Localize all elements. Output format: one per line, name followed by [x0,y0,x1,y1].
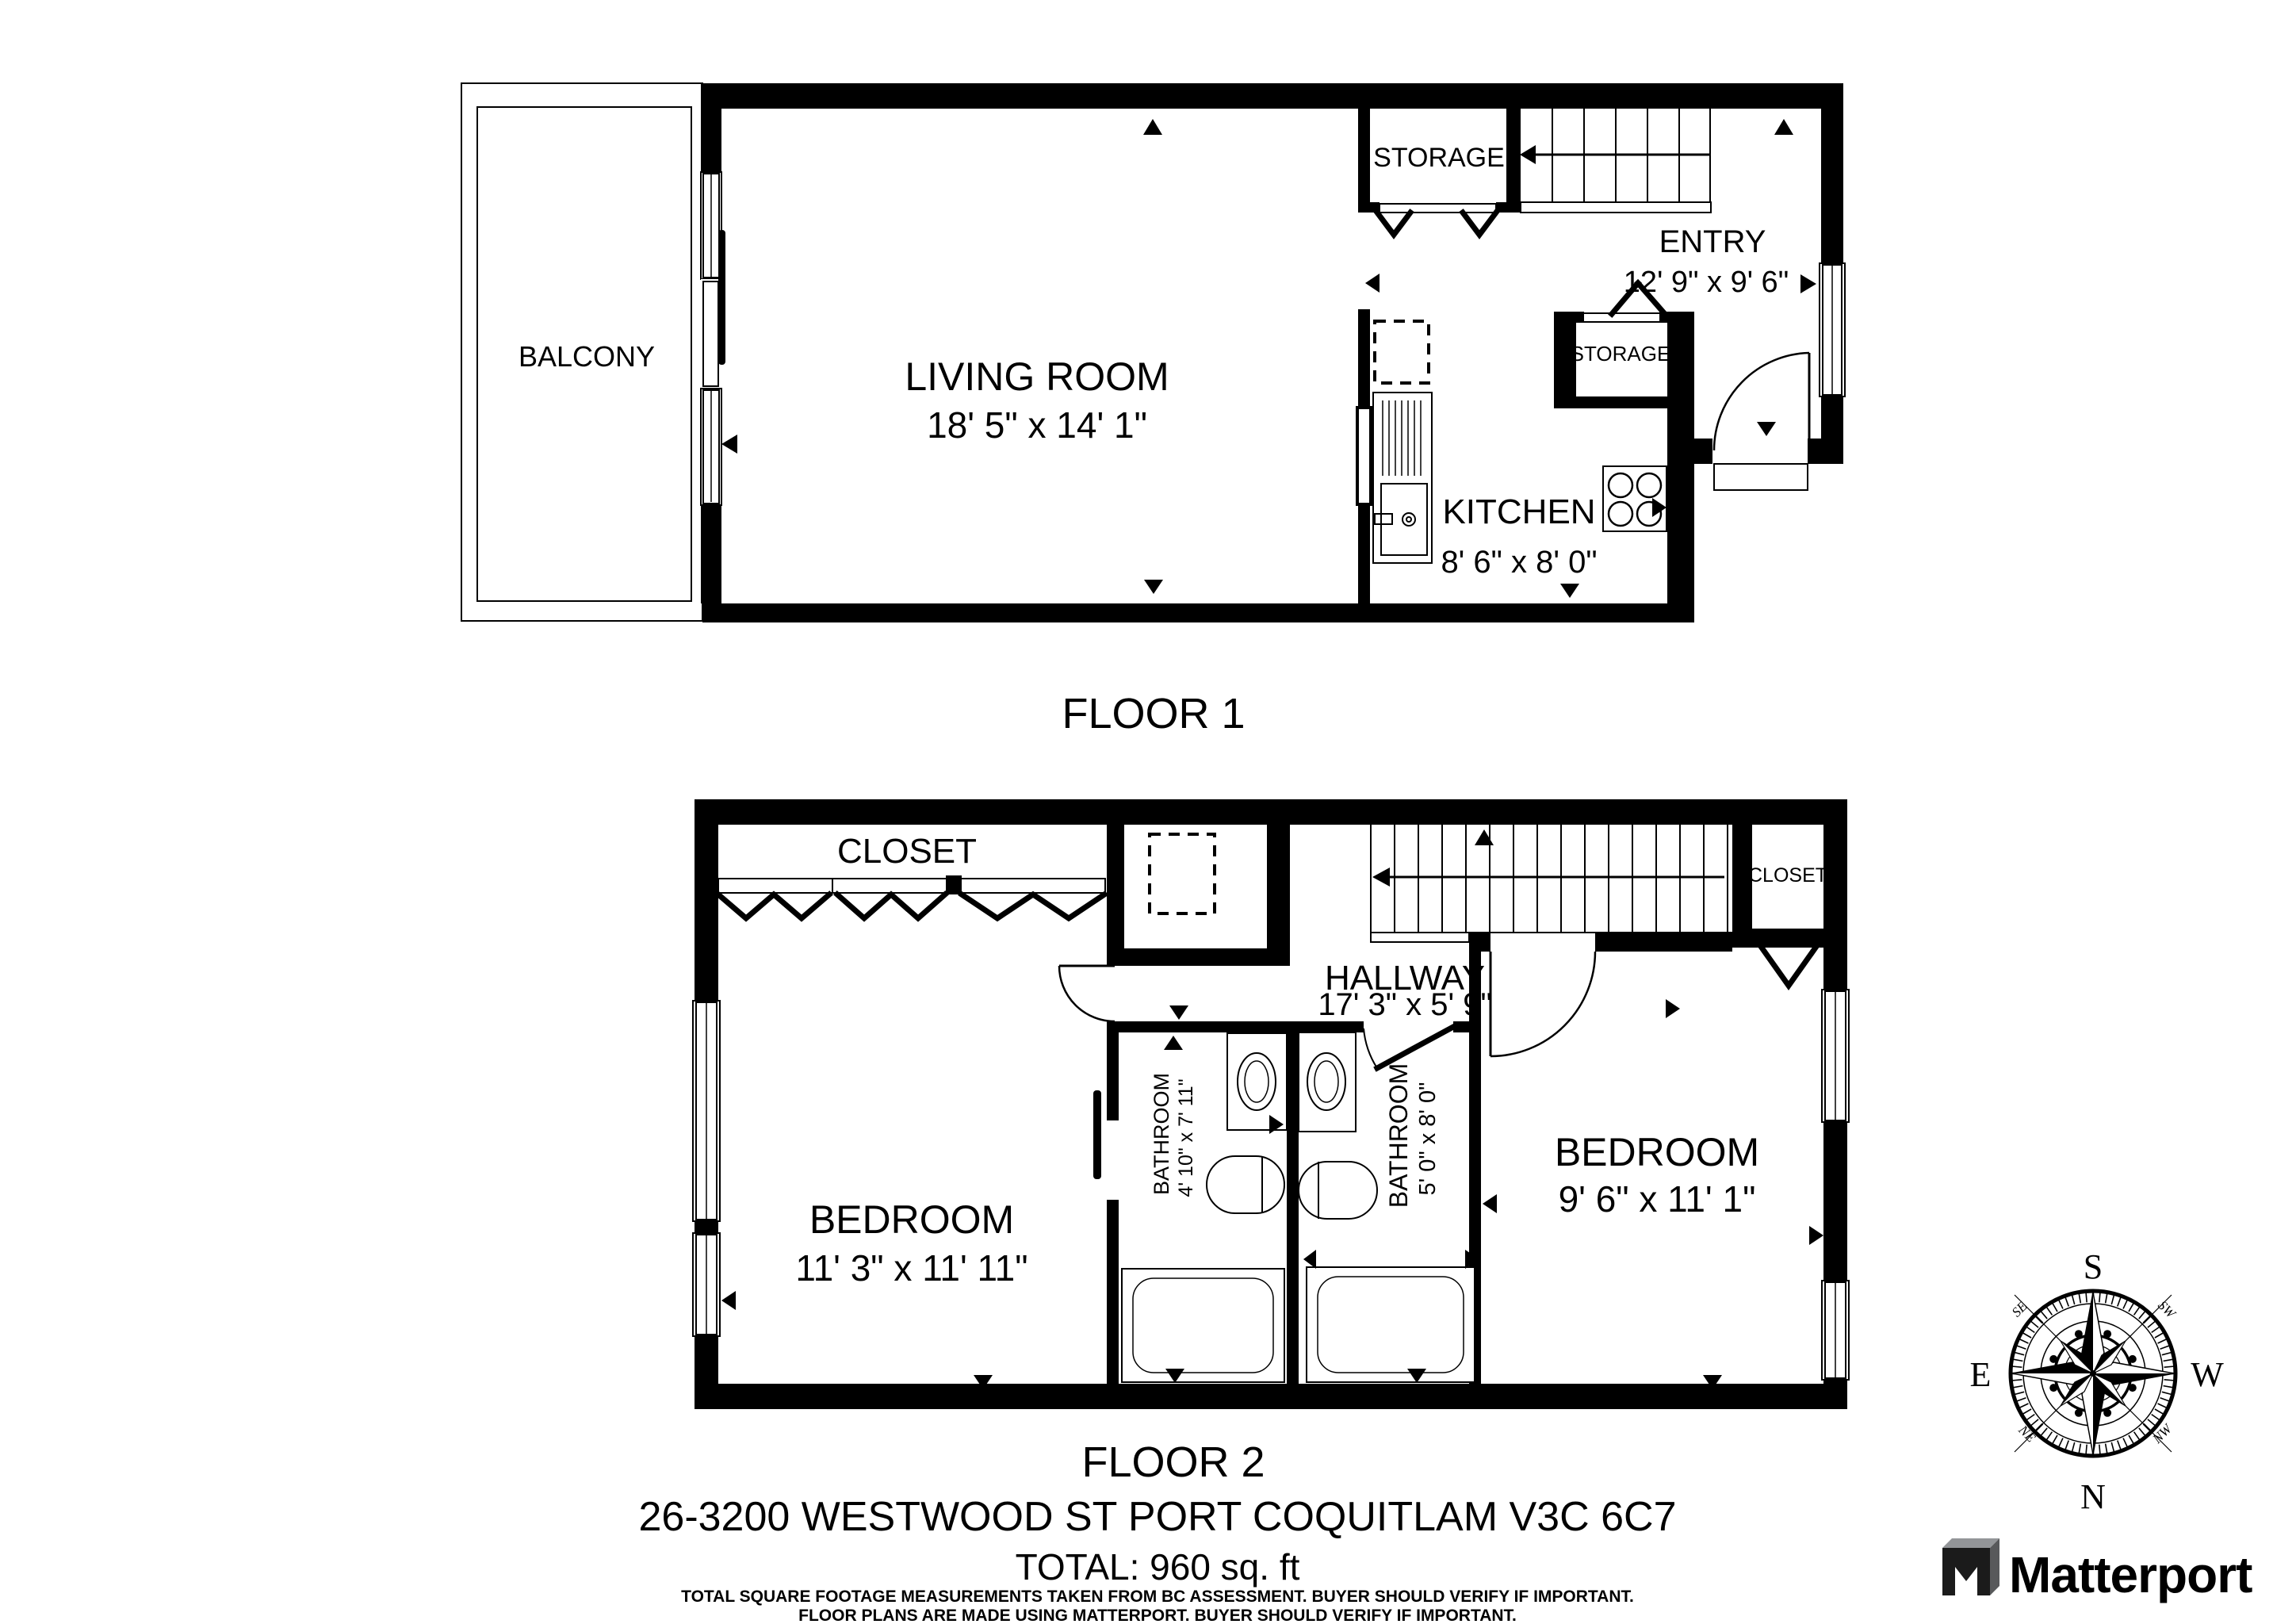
matterport-wordmark: Matterport [2009,1546,2252,1603]
compass-north-label: N [2080,1477,2106,1516]
room-label-entry: ENTRY [1659,224,1766,259]
dimension-marker [1774,119,1793,135]
compass-tick [2160,1398,2169,1401]
bedroom-window [693,1001,720,1221]
plan-geometry [2090,1370,2096,1377]
dimension-marker [1560,584,1579,598]
compass-dot [2075,1409,2083,1417]
room-label-bedroom-left: BEDROOM [809,1197,1014,1242]
compass-tick [2139,1428,2145,1435]
plan-geometry [1521,202,1711,213]
kitchen-stove [1603,466,1667,531]
room-dims-bathroom-right: 5' 0" x 8' 0" [1415,1082,1441,1196]
plan-geometry [1377,1027,1453,1068]
compass-tick [2152,1415,2160,1420]
matterport-logo: Matterport [1942,1538,2252,1603]
compass-dot [2103,1409,2111,1417]
compass-tick [2012,1366,2022,1367]
wall [1358,309,1370,407]
compass-east-label: E [1970,1355,1992,1394]
toilet [1299,1162,1377,1219]
fixture-dashed [1150,834,1215,913]
compass-tick [2123,1300,2127,1309]
compass-tick [2155,1333,2163,1338]
closet-door [1762,948,1816,986]
wall [702,603,1694,622]
dimension-marker [721,1291,736,1310]
compass-tick [2072,1442,2075,1452]
wall [946,875,962,894]
disclaimer-line1: TOTAL SQUARE FOOTAGE MEASUREMENTS TAKEN … [681,1588,1634,1606]
compass-tick [2099,1293,2100,1302]
wall [1469,933,1490,952]
floor1-label: FLOOR 1 [1062,690,1245,737]
room-dims-kitchen: 8' 6" x 8' 0" [1441,545,1597,580]
compass-dot [2049,1384,2057,1392]
room-label-storage-upper: STORAGE [1373,143,1505,173]
room-label-closet-left: CLOSET [837,832,977,871]
compass-tick [2046,1307,2052,1315]
wall [1287,1021,1299,1409]
bifold-door [718,894,829,918]
bedroom-window [693,1233,720,1336]
compass-tick [2041,1312,2047,1319]
compass-tick [2155,1409,2163,1414]
plan-geometry [1364,1028,1377,1068]
compass-tick [2072,1295,2075,1304]
compass-tick [2106,1444,2107,1454]
dimension-marker [1483,1194,1497,1213]
wall [695,799,718,1001]
dimension-marker [1475,829,1494,845]
compass-south-label: S [2084,1247,2103,1286]
compass-tick [2164,1386,2173,1388]
compass-tick [2012,1380,2022,1381]
wall [1107,825,1124,966]
compass-tick [2059,1300,2063,1309]
compass-dot [2103,1330,2111,1338]
wall [1506,109,1521,213]
compass-tick [2139,1312,2145,1319]
compass-tick [2059,1438,2063,1447]
compass-tick [2134,1432,2140,1440]
dimension-marker [1143,119,1162,135]
compass-tick [2152,1327,2160,1332]
compass-west-label: W [2191,1355,2224,1394]
dimension-marker [1169,1005,1188,1020]
compass-sw-label: SW [2155,1297,2179,1322]
plan-geometry [1942,1548,1990,1595]
dimension-marker [1757,422,1776,436]
footer: 26-3200 WESTWOOD ST PORT COQUITLAM V3C 6… [638,1494,1676,1624]
floor2-plan: CLOSET CLOSET HALLWAY 17' 3" x 5' 9" BED… [693,799,1849,1486]
wall [1119,1021,1364,1032]
compass-dot [2075,1330,2083,1338]
staircase-floor2 [1371,825,1732,942]
staircase-floor1 [1520,109,1711,213]
bedroom-window [1822,990,1849,1122]
plan-geometry [1990,1538,1999,1595]
wall [1732,929,1823,948]
compass-tick [2014,1359,2023,1361]
compass-tick [2123,1438,2127,1447]
alcove [1107,825,1290,966]
compass-tick [2026,1415,2034,1420]
room-label-kitchen: KITCHEN [1442,492,1595,531]
wall [1267,825,1290,966]
room-label-bathroom-left: BATHROOM [1150,1073,1173,1195]
entry-window [1820,263,1845,396]
wall [1823,799,1847,990]
room-dims-bedroom-right: 9' 6" x 11' 1" [1559,1178,1756,1220]
entry-porch [1714,464,1808,490]
floor1-plan: BALCONY LIVING ROOM 18' 5" x 14' 1" STOR… [461,83,1845,737]
closet-right [1732,825,1823,986]
compass-tick [2162,1353,2172,1355]
wall [1107,948,1290,966]
dimension-marker [1303,1250,1316,1269]
wall [1667,312,1694,603]
disclaimer-line2: FLOOR PLANS ARE MADE USING MATTERPORT. B… [798,1607,1517,1624]
wall [695,1221,718,1233]
room-dims-entry: 12' 9" x 9' 6" [1624,266,1789,299]
room-label-storage-closet: STORAGE [1571,342,1671,366]
dimension-marker [1164,1036,1183,1050]
plan-geometry [1380,204,1496,213]
plan-geometry [1373,393,1432,563]
plan-geometry [718,879,1105,893]
matterport-logo-icon [1942,1538,1999,1595]
compass-tick [2079,1444,2080,1454]
compass-tick [2015,1353,2024,1355]
compass-tick [2031,1321,2038,1327]
compass-tick [2023,1333,2031,1338]
bifold-door [962,894,1104,918]
wall [1823,1122,1847,1281]
wall [695,1384,1847,1409]
wall [1358,505,1370,603]
wall [695,799,1847,825]
compass-tick [2148,1321,2155,1327]
compass-tick [2031,1419,2038,1426]
compass-tick [2041,1428,2047,1435]
compass-se-label: SE [2009,1298,2030,1319]
plan-geometry [1371,933,1469,942]
compass-dot [2129,1384,2137,1392]
room-dims-hallway: 17' 3" x 5' 9" [1318,987,1491,1022]
address-text: 26-3200 WESTWOOD ST PORT COQUITLAM V3C 6… [638,1494,1676,1540]
plan-geometry [1582,313,1661,322]
compass-tick [2099,1445,2100,1454]
compass-tick [2129,1435,2133,1443]
compass-tick [2111,1295,2114,1304]
compass-tick [2129,1304,2133,1312]
compass-ne-label: NE [2015,1422,2039,1446]
bathtub [1122,1269,1284,1382]
compass-rose: S N E W SE SW NE NW [1970,1247,2225,1516]
floor2-label: FLOOR 2 [1081,1438,1265,1486]
storage-double-door [1463,213,1496,235]
kitchen-wall [1357,309,1372,603]
bathroom-right-door [1364,1027,1453,1068]
compass-tick [2065,1297,2068,1306]
compass-tick [2160,1346,2169,1349]
compass-tick [2053,1435,2057,1443]
room-dims-bedroom-left: 11' 3" x 11' 11" [795,1247,1027,1289]
compass-tick [2164,1380,2174,1381]
plan-geometry [1714,353,1809,450]
wall [1107,1021,1119,1120]
wall [701,83,721,172]
floor-plan-canvas: BALCONY LIVING ROOM 18' 5" x 14' 1" STOR… [0,0,2296,1624]
entry-door [1714,353,1809,450]
compass-tick [2134,1307,2140,1315]
compass-tick [2158,1404,2167,1408]
wall [1823,1380,1847,1409]
compass-dot [2049,1355,2057,1363]
compass-tick [2017,1398,2026,1401]
wall [1554,396,1667,408]
closet-left [718,875,1105,918]
dimension-marker [1800,274,1816,293]
storage-double-door [1377,213,1410,235]
kitchen-appliance-dashed [1375,321,1429,383]
compass-tick [2046,1432,2052,1440]
compass-tick [2023,1409,2031,1414]
sliding-door-panel [718,230,725,365]
compass-tick [2053,1304,2057,1312]
wall [695,1336,718,1409]
dimension-marker [721,435,737,454]
total-area-text: TOTAL: 960 sq. ft [1016,1546,1300,1588]
room-dims-bathroom-left: 4' 10" x 7' 11" [1175,1078,1197,1197]
dimension-marker [1365,274,1380,293]
bedroom-right-door [1490,952,1595,1056]
sink-vanity [1227,1033,1287,1130]
dimension-marker [1809,1226,1823,1245]
compass-tick [2017,1346,2026,1349]
living-room-window [701,389,721,505]
compass-tick [2026,1327,2034,1332]
wall [1595,933,1732,952]
compass-tick [2164,1359,2173,1361]
compass-tick [2118,1441,2121,1450]
compass-tick [2014,1386,2023,1388]
plan-geometry [1375,321,1429,383]
compass-tick [2086,1445,2087,1454]
room-label-bathroom-right: BATHROOM [1384,1063,1413,1208]
plan-geometry [1490,952,1595,1056]
stair-direction-arrow [1520,145,1536,164]
compass-tick [2111,1442,2114,1452]
wall [701,505,721,603]
compass-tick [2079,1294,2080,1304]
bedroom-window [1822,1281,1849,1380]
compass-tick [2162,1392,2172,1394]
wall [702,83,1843,109]
plan-geometry [1942,1538,1999,1548]
compass-tick [2086,1293,2087,1302]
kitchen-sink-counter [1373,393,1432,563]
sliding-door-panel [1093,1090,1101,1179]
compass-tick [2020,1404,2029,1408]
room-label-balcony: BALCONY [519,340,655,373]
compass-tick [2065,1441,2068,1450]
compass-tick [2106,1294,2107,1304]
toilet [1207,1156,1284,1213]
compass-tick [2164,1366,2174,1367]
compass-tick [2148,1419,2155,1426]
compass-tick [2118,1297,2121,1306]
dimension-marker [1666,999,1680,1018]
bifold-door [837,894,945,918]
wall [1107,1200,1119,1409]
wall [1496,202,1521,213]
plan-geometry [1059,966,1115,1021]
room-label-bedroom-right: BEDROOM [1555,1130,1759,1174]
entry-door-opening [1712,437,1808,465]
room-label-living-room: LIVING ROOM [905,354,1169,399]
bathroom-left-fixtures [1122,1033,1287,1382]
compass-tick [2158,1339,2167,1343]
wall [1358,109,1370,213]
room-label-closet-right: CLOSET [1748,864,1827,887]
stair-direction-arrow [1372,868,1390,887]
bedroom-left-door [1059,966,1115,1021]
bathtub [1307,1267,1475,1382]
compass-tick [2020,1339,2029,1343]
dimension-marker [1144,580,1163,594]
compass-tick [2015,1392,2024,1394]
compass-dot [2129,1355,2137,1363]
room-dims-living-room: 18' 5" x 14' 1" [927,404,1147,446]
